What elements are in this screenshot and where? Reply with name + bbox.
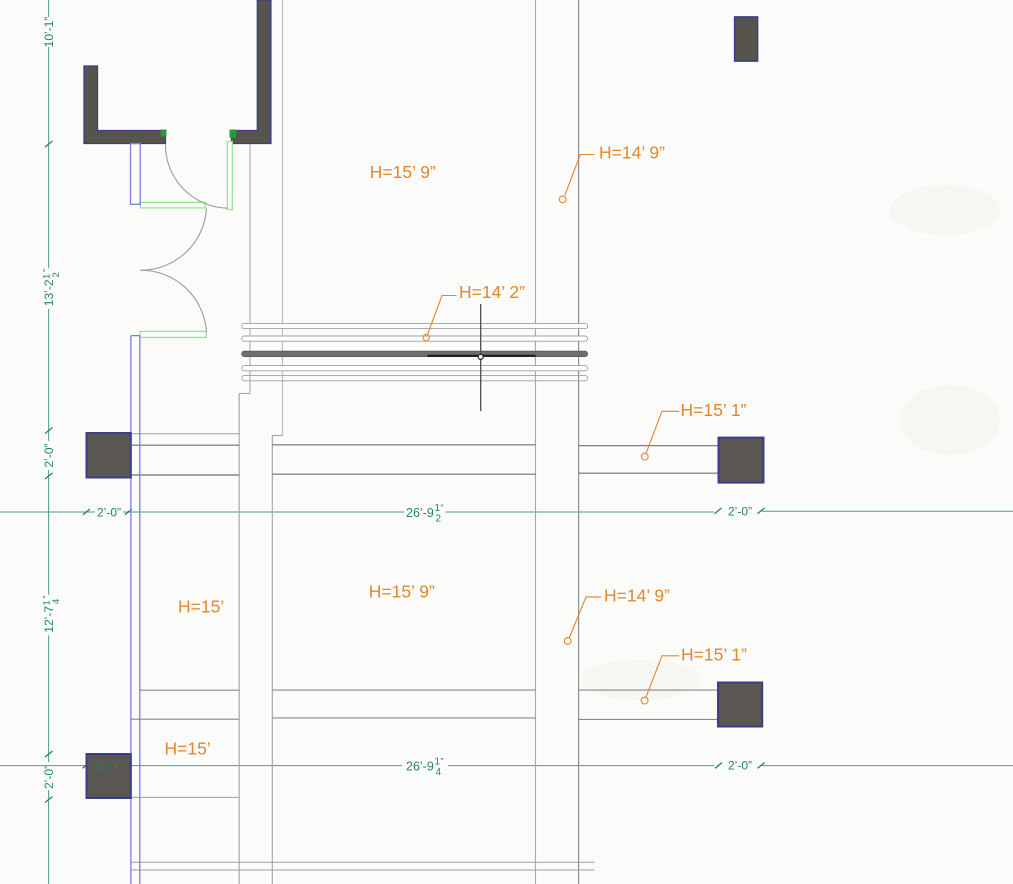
svg-text:”: ”: [441, 757, 444, 767]
svg-text:H=14’ 9”: H=14’ 9”: [604, 586, 670, 606]
svg-text:”: ”: [41, 269, 51, 272]
svg-text:4: 4: [51, 599, 62, 604]
svg-text:2’-0”: 2’-0”: [42, 443, 56, 467]
svg-text:26’-9: 26’-9: [406, 506, 434, 520]
svg-text:H=14’ 2”: H=14’ 2”: [459, 282, 525, 302]
svg-text:10’-1”: 10’-1”: [42, 17, 56, 48]
svg-text:2’-0”: 2’-0”: [42, 765, 56, 789]
svg-text:2’-0”: 2’-0”: [728, 759, 752, 773]
svg-text:2: 2: [51, 272, 62, 277]
svg-text:26’-9: 26’-9: [406, 760, 434, 774]
svg-text:2’-0”: 2’-0”: [728, 505, 752, 519]
svg-text:2’-0”: 2’-0”: [97, 506, 121, 520]
svg-text:12’-7: 12’-7: [42, 606, 56, 633]
svg-text:2: 2: [436, 514, 442, 525]
svg-text:H=15’: H=15’: [165, 739, 211, 759]
svg-text:H=15’: H=15’: [178, 597, 224, 617]
svg-text:”: ”: [441, 503, 444, 513]
svg-text:13’-2: 13’-2: [42, 279, 56, 306]
svg-text:H=15’ 9”: H=15’ 9”: [369, 582, 435, 602]
svg-text:2’-0”: 2’-0”: [95, 759, 121, 774]
svg-text:H=14’ 9”: H=14’ 9”: [599, 143, 665, 163]
svg-text:H=15’ 9”: H=15’ 9”: [370, 162, 436, 182]
svg-text:”: ”: [41, 596, 51, 599]
svg-text:H=15’ 1”: H=15’ 1”: [681, 645, 747, 665]
svg-text:H=15’ 1”: H=15’ 1”: [681, 400, 747, 420]
svg-text:4: 4: [436, 767, 442, 778]
